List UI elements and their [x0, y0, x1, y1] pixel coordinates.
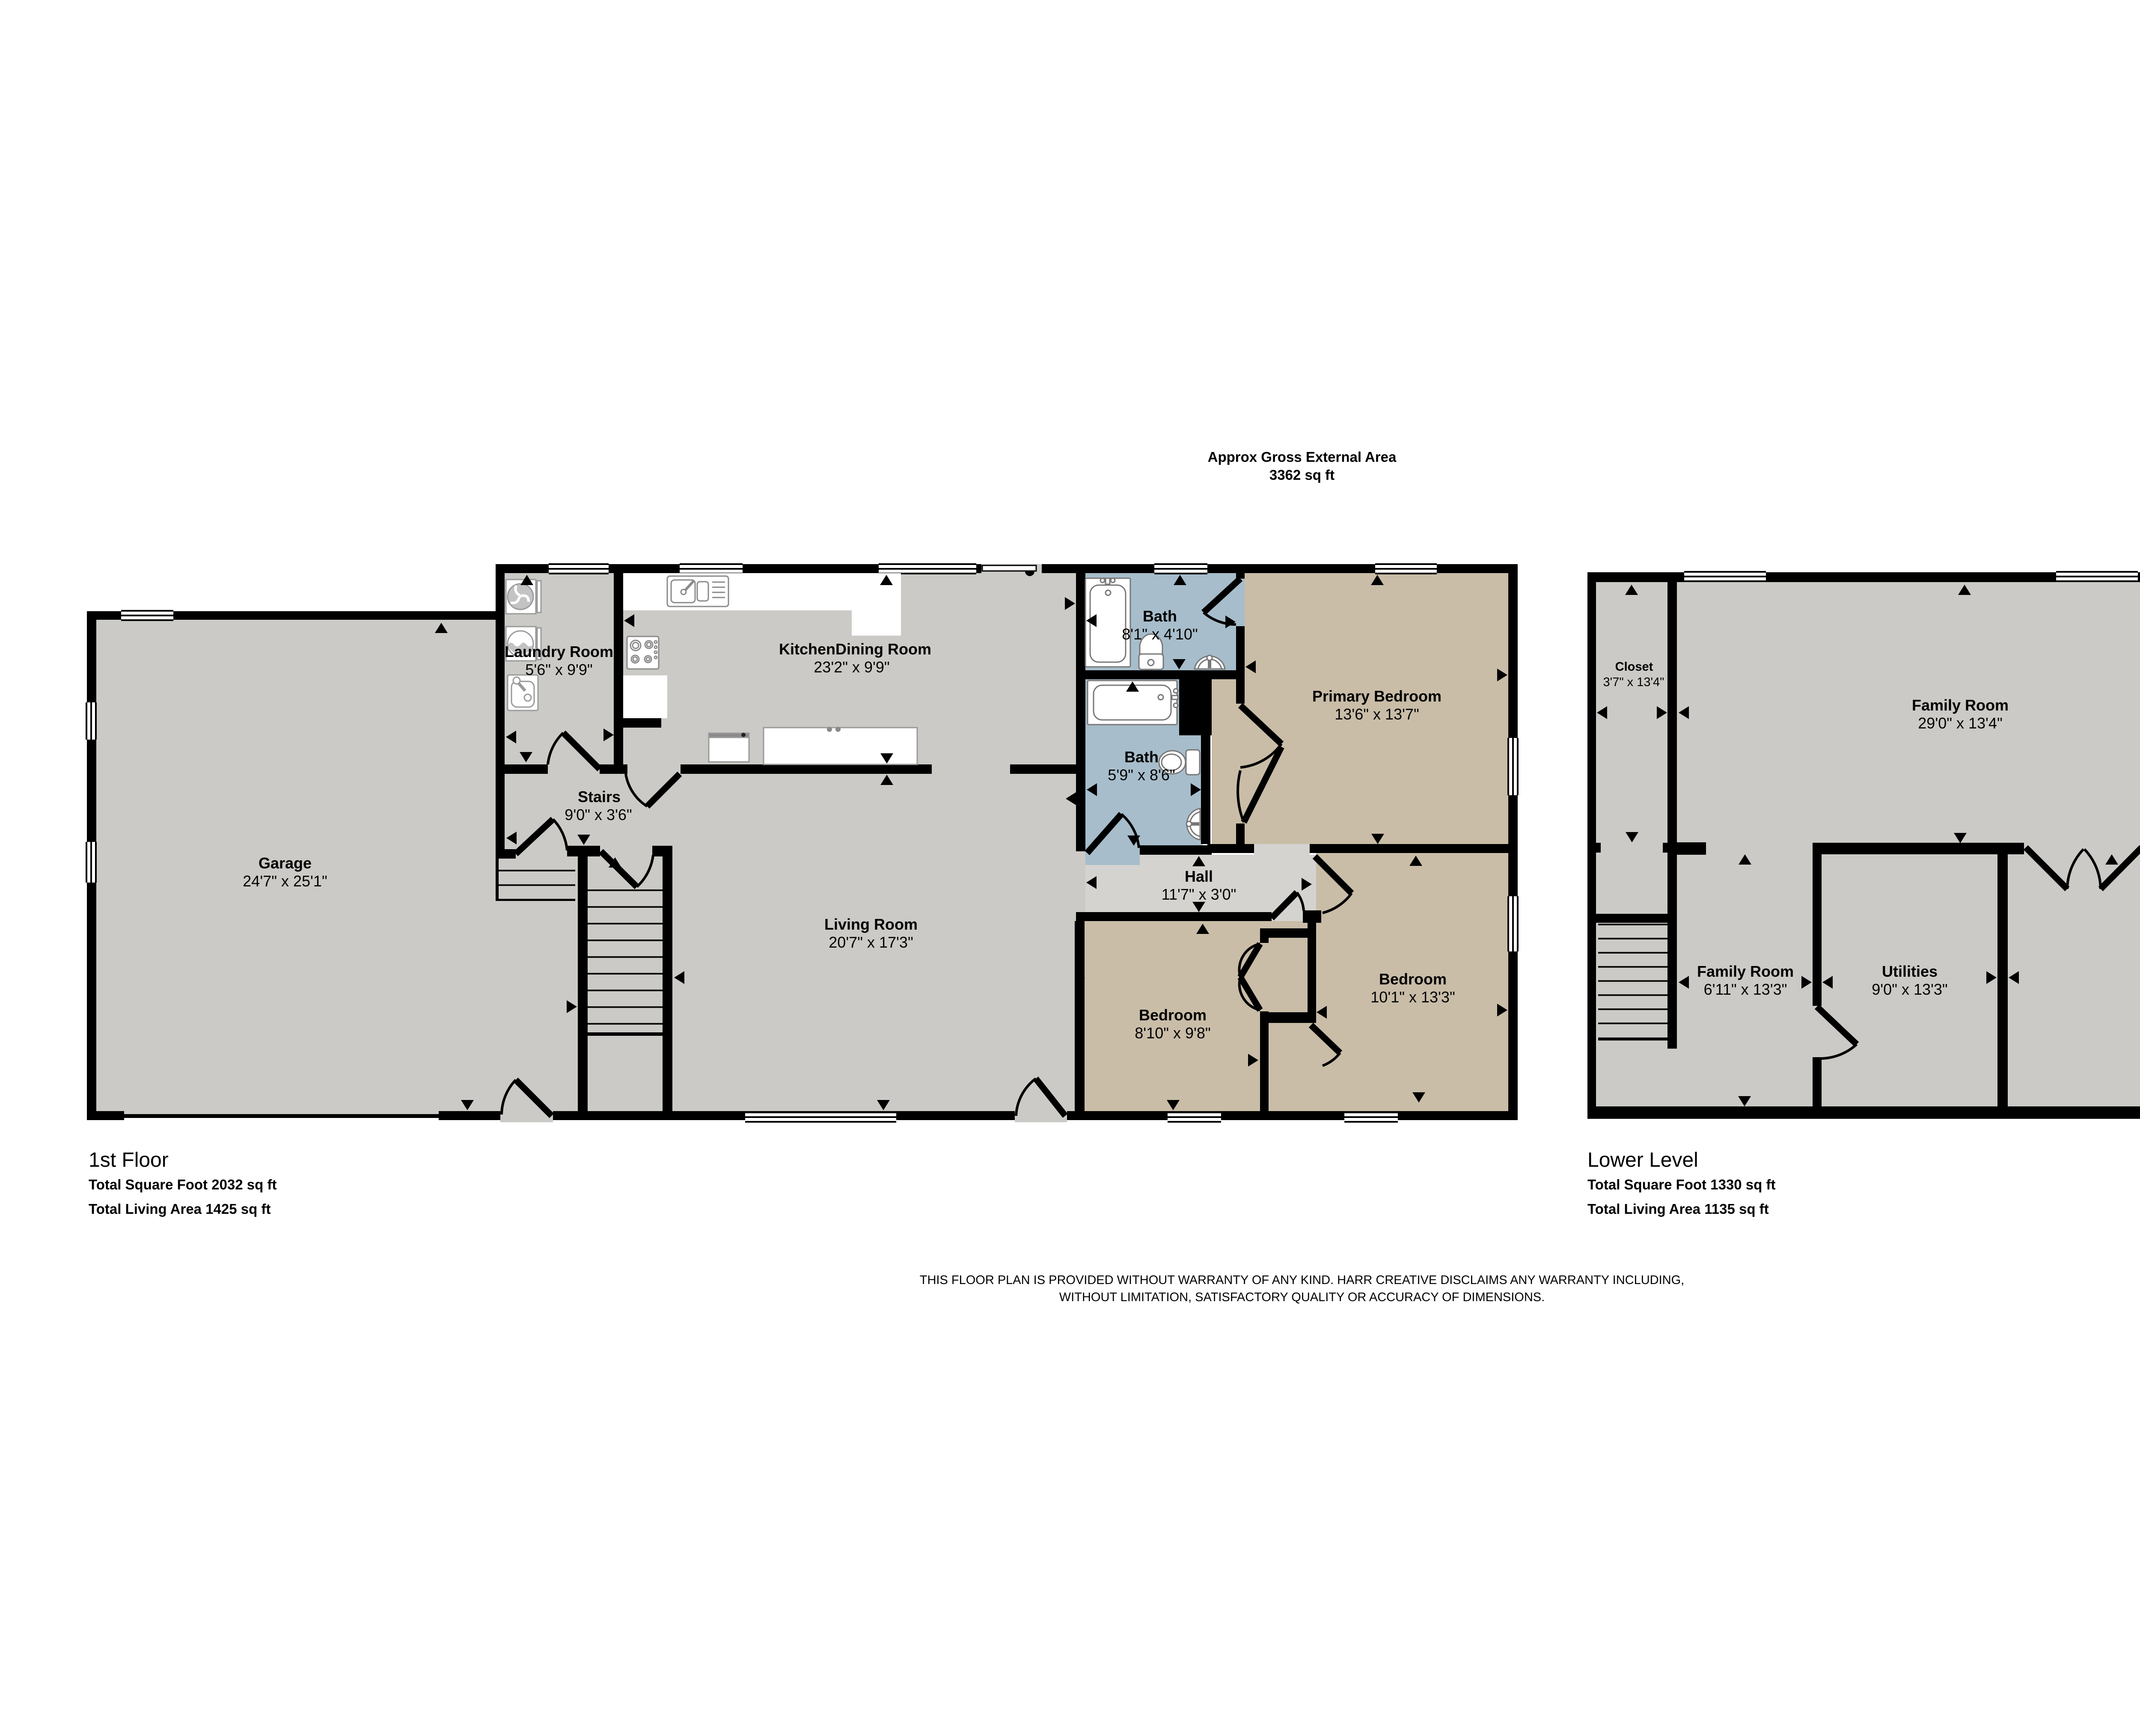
svg-text:6'11" x 13'3": 6'11" x 13'3" — [1704, 981, 1787, 998]
svg-text:8'10" x 9'8": 8'10" x 9'8" — [1135, 1024, 1210, 1042]
svg-text:Laundry Room: Laundry Room — [505, 643, 613, 660]
svg-text:Stairs: Stairs — [578, 788, 621, 806]
svg-text:Garage: Garage — [259, 854, 312, 872]
svg-text:10'1" x 13'3": 10'1" x 13'3" — [1370, 988, 1455, 1006]
svg-text:Primary Bedroom: Primary Bedroom — [1312, 687, 1442, 705]
svg-text:Family Room: Family Room — [1912, 696, 2009, 714]
svg-text:Closet: Closet — [1615, 660, 1653, 674]
svg-text:Lower Level: Lower Level — [1587, 1149, 1698, 1171]
svg-text:1st Floor: 1st Floor — [89, 1149, 169, 1171]
svg-text:Total Square Foot 1330 sq ft: Total Square Foot 1330 sq ft — [1587, 1177, 1775, 1192]
svg-text:11'7" x 3'0": 11'7" x 3'0" — [1162, 886, 1236, 903]
svg-text:Total Square Foot 2032 sq ft: Total Square Foot 2032 sq ft — [89, 1177, 276, 1192]
svg-text:9'0" x 13'3": 9'0" x 13'3" — [1872, 981, 1947, 998]
svg-text:3362 sq ft: 3362 sq ft — [1269, 467, 1335, 483]
svg-text:29'0" x 13'4": 29'0" x 13'4" — [1918, 714, 2002, 732]
svg-text:Bedroom: Bedroom — [1379, 970, 1447, 988]
svg-text:Total Living Area 1425 sq ft: Total Living Area 1425 sq ft — [89, 1201, 270, 1217]
svg-text:KitchenDining Room: KitchenDining Room — [779, 640, 931, 658]
svg-text:Approx Gross External Area: Approx Gross External Area — [1208, 449, 1397, 465]
svg-text:5'6" x 9'9": 5'6" x 9'9" — [525, 661, 592, 678]
svg-text:3'7" x 13'4": 3'7" x 13'4" — [1603, 675, 1664, 689]
svg-text:8'1" x 4'10": 8'1" x 4'10" — [1122, 625, 1198, 643]
svg-text:Total Living Area 1135 sq ft: Total Living Area 1135 sq ft — [1587, 1201, 1769, 1217]
svg-text:WITHOUT LIMITATION, SATISFACTO: WITHOUT LIMITATION, SATISFACTORY QUALITY… — [1059, 1290, 1545, 1304]
svg-text:Utilities: Utilities — [1882, 963, 1938, 980]
svg-text:Bath: Bath — [1143, 607, 1177, 625]
svg-text:13'6" x 13'7": 13'6" x 13'7" — [1335, 705, 1419, 723]
svg-text:THIS FLOOR PLAN IS PROVIDED WI: THIS FLOOR PLAN IS PROVIDED WITHOUT WARR… — [920, 1273, 1684, 1287]
svg-text:Bedroom: Bedroom — [1139, 1006, 1207, 1024]
svg-text:5'9" x 8'6": 5'9" x 8'6" — [1108, 766, 1175, 784]
svg-text:23'2" x 9'9": 23'2" x 9'9" — [814, 658, 889, 676]
svg-text:24'7" x 25'1": 24'7" x 25'1" — [243, 872, 327, 890]
svg-text:Living Room: Living Room — [824, 916, 918, 933]
svg-text:Hall: Hall — [1185, 868, 1213, 885]
svg-text:20'7" x 17'3": 20'7" x 17'3" — [829, 933, 913, 951]
svg-text:9'0" x 3'6": 9'0" x 3'6" — [565, 806, 632, 823]
svg-text:Bath: Bath — [1124, 748, 1159, 766]
svg-text:Family Room: Family Room — [1697, 963, 1794, 980]
